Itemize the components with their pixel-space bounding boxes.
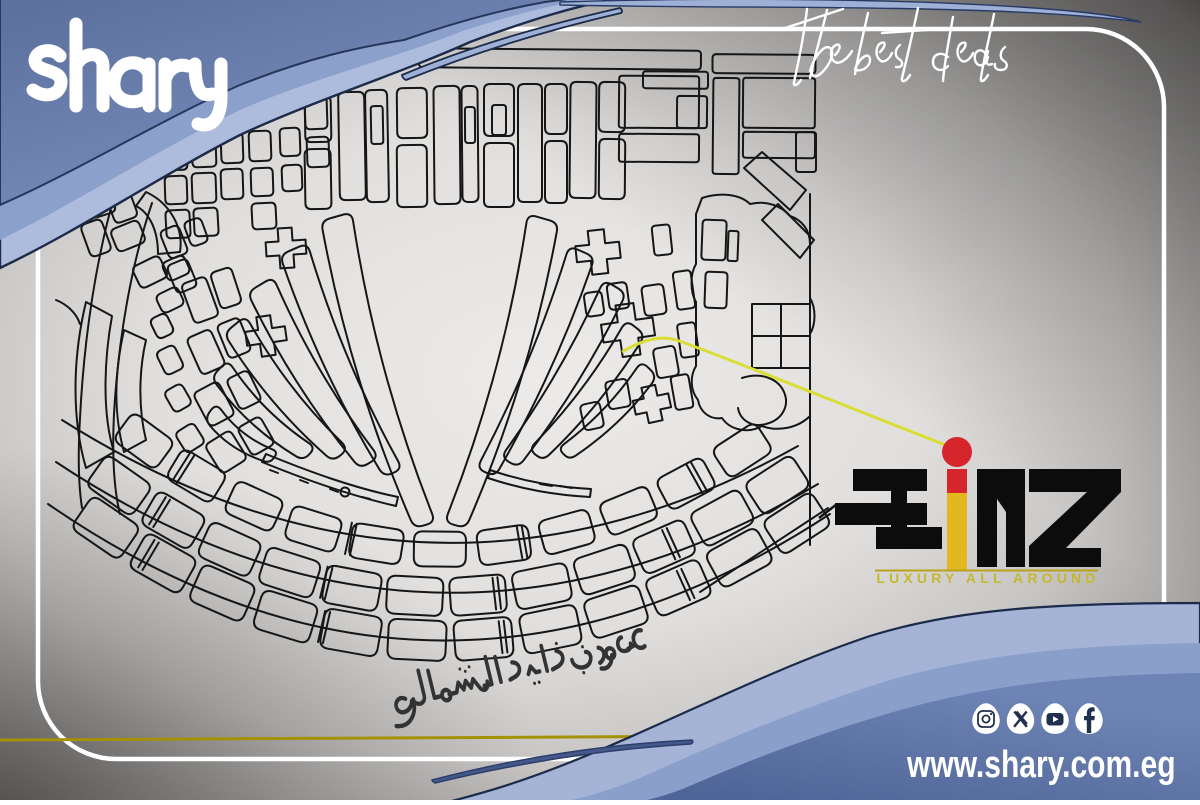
svg-text:LUXURY ALL AROUND: LUXURY ALL AROUND <box>876 570 1099 586</box>
svg-text:www.shary.com.eg: www.shary.com.eg <box>906 744 1175 786</box>
